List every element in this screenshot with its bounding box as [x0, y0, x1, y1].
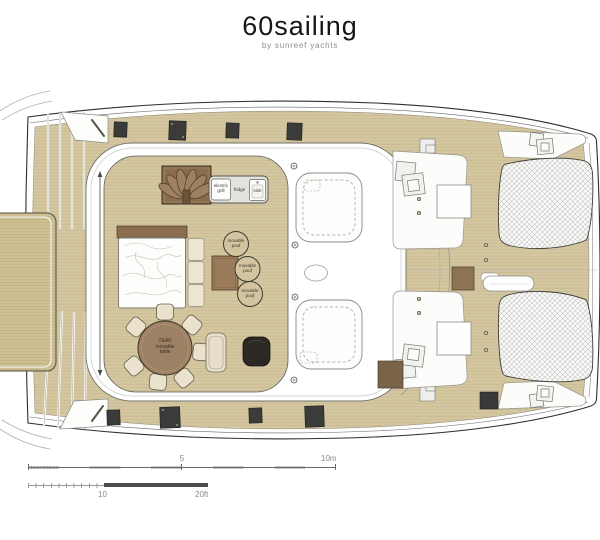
- scale-feet-mid-label: 10: [98, 490, 107, 499]
- scale-bar-feet: 10 20ft: [28, 480, 218, 500]
- deck-hatch-dark: [480, 392, 498, 409]
- armchair: [243, 337, 270, 366]
- hatch: [287, 123, 303, 141]
- hatch: [114, 122, 128, 137]
- foredeck-top-patch: [393, 151, 471, 249]
- trampoline-top: [498, 158, 592, 248]
- yacht-deck-plan-page: 60sailing by sunreef yachts: [0, 0, 600, 540]
- swim-platform: [0, 213, 56, 371]
- scale-meters-line: [28, 467, 336, 468]
- scale-feet-end-label: 20ft: [195, 490, 208, 499]
- coffee-table: [212, 256, 238, 290]
- scale-meters-mid-label: 5: [176, 454, 188, 463]
- sunbed: [117, 226, 187, 308]
- fan-lounge: [157, 166, 217, 204]
- hatch: [107, 410, 121, 425]
- movable-pouf: [238, 282, 263, 307]
- side-bench: [206, 333, 226, 372]
- movable-pouf: [235, 257, 260, 282]
- scale-feet-ticks: [28, 483, 104, 488]
- roof-port: [305, 265, 328, 281]
- teak-table: [138, 321, 192, 375]
- trampoline-bottom: [498, 291, 592, 381]
- scale-bar-meters: 5 10m: [28, 454, 340, 476]
- anchor-locker-handle: [481, 273, 534, 291]
- storage-box: [378, 361, 403, 388]
- movable-pouf: [224, 232, 249, 257]
- hatch: [226, 123, 240, 138]
- hatch: [249, 408, 263, 423]
- galley-unit: [209, 176, 268, 203]
- electric-grill: [212, 179, 231, 200]
- bench-cushions: [188, 239, 204, 307]
- scale-meters-subticks: [28, 466, 59, 469]
- scale-feet-bar: [104, 483, 208, 487]
- deck-box: [452, 267, 474, 290]
- hatch: [305, 406, 325, 428]
- sunbed-headboard: [117, 226, 187, 238]
- scale-meters-end-label: 10m: [321, 454, 337, 463]
